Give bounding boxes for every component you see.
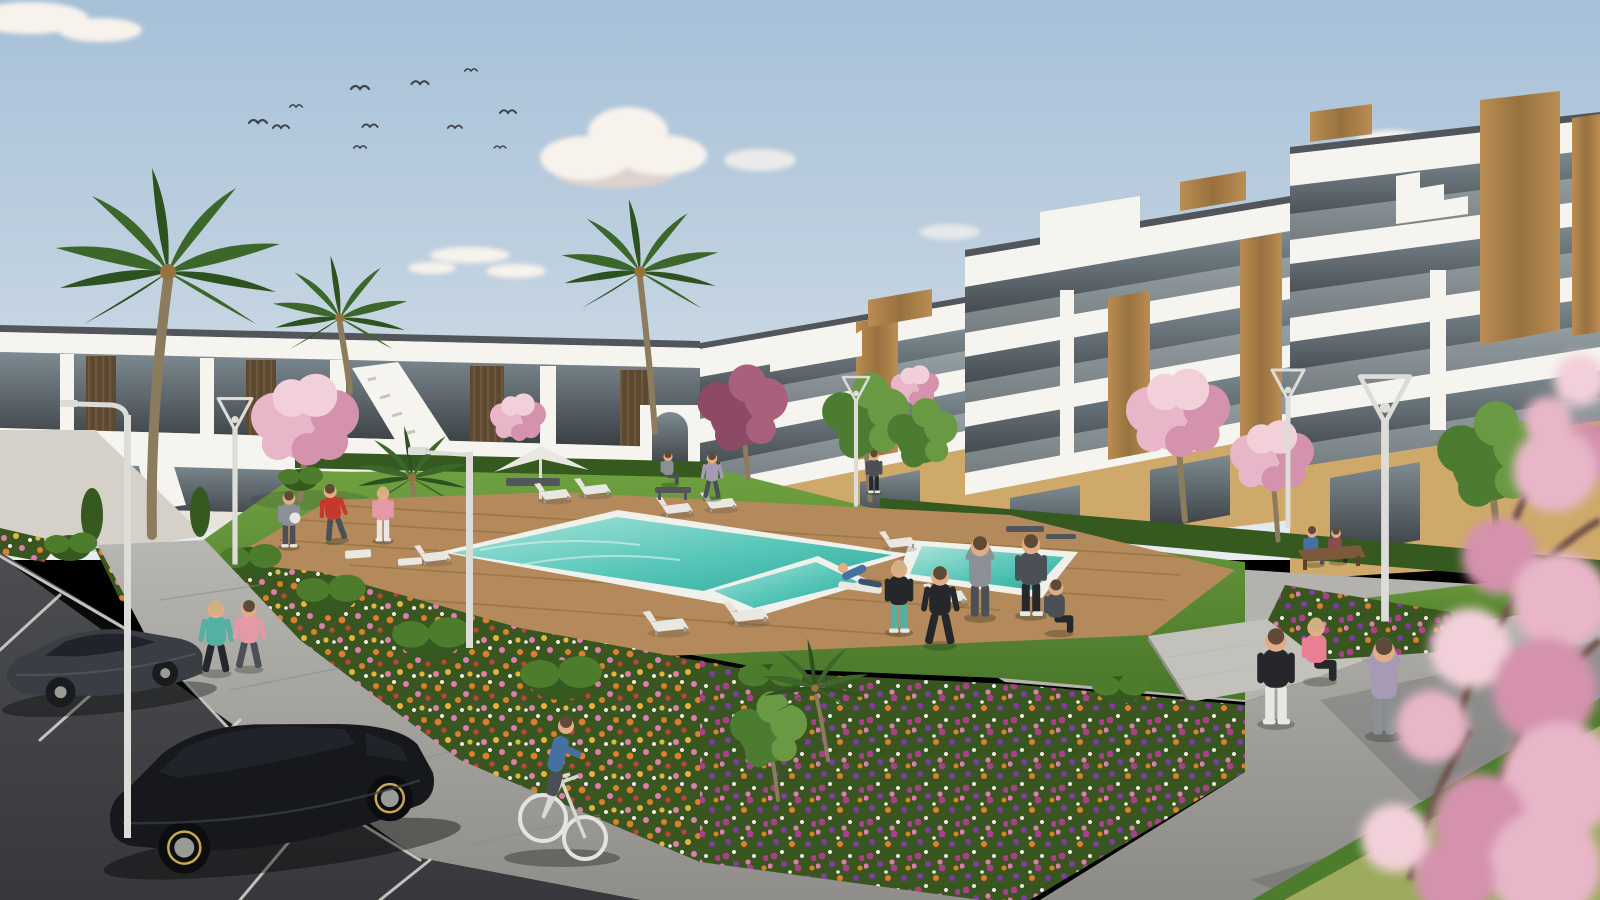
scene-svg bbox=[0, 0, 1600, 900]
mullion bbox=[200, 358, 214, 438]
parasol-bench bbox=[506, 478, 560, 486]
wood-tower bbox=[1480, 91, 1560, 345]
wood-slat-panel bbox=[86, 356, 116, 432]
pier bbox=[1060, 290, 1074, 460]
mullion bbox=[60, 354, 74, 434]
pier bbox=[1430, 270, 1446, 430]
columnar-shrub bbox=[190, 487, 210, 537]
render-scene bbox=[0, 0, 1600, 900]
exercise-ball bbox=[290, 513, 301, 524]
wood-edge bbox=[1572, 114, 1600, 336]
wood-panel bbox=[1240, 233, 1282, 438]
